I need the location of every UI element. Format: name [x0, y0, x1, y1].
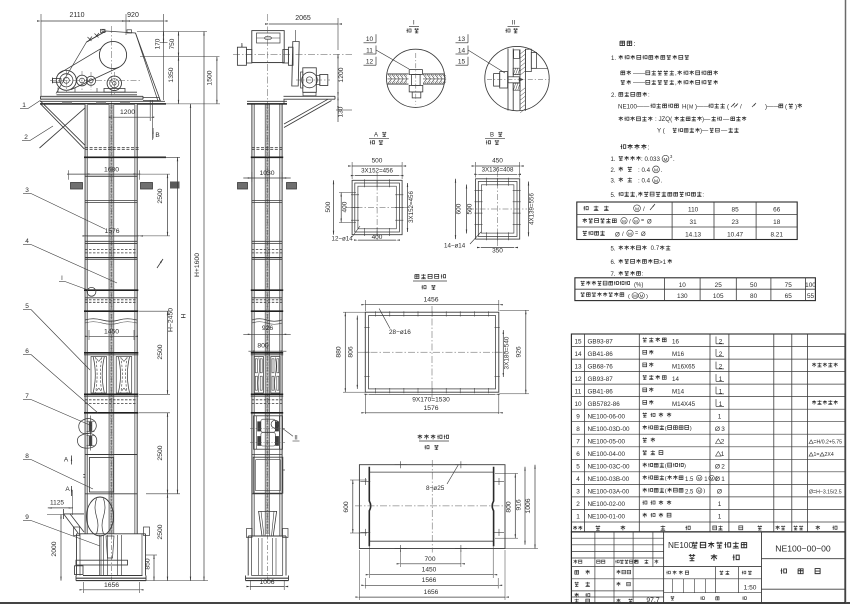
svg-text:)—: )— [702, 116, 711, 123]
svg-text:15: 15 [574, 338, 582, 345]
svg-text:M: M [697, 476, 701, 481]
svg-text:450: 450 [492, 158, 503, 165]
svg-text:)——: )—— [765, 104, 780, 111]
svg-text:=: = [641, 218, 644, 224]
svg-text:100: 100 [805, 282, 816, 289]
svg-text:400: 400 [341, 201, 348, 212]
svg-text:)—: )— [700, 128, 709, 135]
svg-text:M: M [622, 219, 626, 224]
svg-text:M: M [710, 476, 714, 481]
svg-text:2X4: 2X4 [825, 452, 834, 458]
svg-text:1.: 1. [611, 56, 616, 62]
svg-text:H: H [180, 313, 187, 318]
svg-text:M: M [664, 157, 668, 163]
svg-text:3X136=408: 3X136=408 [482, 166, 514, 173]
svg-text:2500: 2500 [157, 344, 164, 359]
svg-text:5.: 5. [611, 193, 616, 199]
svg-text:H−2450: H−2450 [168, 308, 175, 332]
svg-text:1:50: 1:50 [744, 585, 757, 592]
svg-text:: 0.4: : 0.4 [638, 178, 651, 185]
svg-text::: : [648, 144, 650, 151]
svg-text:14.13: 14.13 [685, 232, 701, 239]
svg-text:11: 11 [575, 388, 582, 395]
svg-text:3.: 3. [611, 179, 616, 185]
svg-text:M14: M14 [672, 388, 685, 395]
svg-text:): ) [703, 488, 705, 494]
svg-text:NE100-03B-00: NE100-03B-00 [588, 476, 630, 483]
svg-text:500: 500 [372, 158, 383, 165]
svg-text:A: A [64, 457, 69, 464]
svg-text:1: 1 [718, 514, 722, 521]
svg-text:1: 1 [719, 388, 723, 395]
svg-text:1.5: 1.5 [685, 477, 694, 483]
svg-text:3: 3 [721, 426, 725, 433]
svg-text:(: ( [665, 426, 667, 432]
svg-text:9: 9 [25, 514, 29, 521]
svg-text:130: 130 [677, 293, 688, 300]
svg-text:M: M [654, 178, 658, 184]
svg-text:1: 1 [718, 414, 722, 421]
svg-text:: JZQ(: : JZQ( [655, 116, 673, 123]
svg-text:12: 12 [574, 376, 582, 383]
svg-text:Ø: Ø [715, 476, 720, 483]
svg-text:1450: 1450 [104, 328, 119, 335]
svg-text:1.: 1. [611, 157, 616, 163]
svg-text:): ) [690, 426, 692, 432]
svg-text:110: 110 [688, 207, 699, 214]
svg-text:2500: 2500 [157, 524, 164, 539]
svg-text:13: 13 [458, 36, 466, 43]
svg-text:80: 80 [750, 293, 758, 300]
svg-text:2: 2 [719, 351, 723, 358]
svg-text:5: 5 [576, 464, 580, 471]
svg-text:=H/0.2+5.75: =H/0.2+5.75 [814, 440, 843, 446]
svg-text:3: 3 [576, 489, 580, 496]
svg-text:7: 7 [25, 393, 29, 400]
svg-text:2: 2 [24, 134, 28, 141]
svg-text:1500: 1500 [207, 70, 214, 85]
svg-text:M16: M16 [672, 351, 685, 358]
svg-text:1656: 1656 [424, 589, 439, 596]
svg-text:(: ( [665, 463, 667, 469]
svg-text:8.21: 8.21 [770, 232, 783, 239]
svg-text:Ø: Ø [717, 489, 722, 496]
svg-text:14−ø14: 14−ø14 [444, 243, 466, 250]
svg-text:1: 1 [22, 102, 26, 109]
svg-text:H+1600: H+1600 [194, 253, 201, 277]
svg-text:: 0.4: : 0.4 [638, 167, 651, 174]
svg-text:920: 920 [127, 12, 139, 19]
svg-text:31: 31 [690, 219, 698, 226]
svg-text:NE100-05-00: NE100-05-00 [588, 439, 626, 446]
svg-text:2: 2 [721, 439, 725, 446]
svg-text:M: M [640, 294, 644, 299]
svg-text:1=: 1= [814, 452, 820, 458]
svg-text:75: 75 [785, 282, 793, 289]
svg-text:600: 600 [343, 501, 350, 513]
svg-text:——: —— [633, 81, 645, 87]
svg-text:GB41-86: GB41-86 [588, 388, 614, 395]
svg-text:NE100-03C-00: NE100-03C-00 [588, 464, 631, 471]
svg-text:8−ø25: 8−ø25 [426, 485, 445, 492]
svg-text:12: 12 [366, 59, 374, 66]
svg-text:2500: 2500 [157, 188, 164, 203]
svg-text:7.: 7. [611, 272, 616, 278]
svg-text:M14X45: M14X45 [672, 401, 696, 408]
svg-text:Ø: Ø [715, 426, 720, 433]
svg-text:23: 23 [732, 219, 740, 226]
svg-text:50: 50 [750, 282, 758, 289]
svg-text:II: II [512, 20, 516, 27]
svg-text:916: 916 [515, 499, 522, 511]
svg-text:6: 6 [25, 348, 29, 355]
svg-text:Ø: Ø [647, 220, 652, 226]
svg-text:1125: 1125 [50, 500, 64, 507]
svg-text:(: ( [628, 294, 630, 300]
svg-text:1576: 1576 [423, 405, 438, 412]
svg-text:—: — [723, 116, 730, 123]
svg-text:M16X65: M16X65 [672, 363, 696, 370]
svg-text:/: / [740, 104, 742, 111]
svg-text:NE100-01-00: NE100-01-00 [588, 514, 626, 521]
svg-text:B: B [490, 133, 494, 139]
svg-text:1576: 1576 [104, 228, 119, 235]
svg-text:1200: 1200 [338, 67, 345, 82]
svg-text:9X170=1530: 9X170=1530 [412, 396, 450, 403]
svg-text:1: 1 [718, 501, 722, 508]
svg-text:6: 6 [576, 451, 580, 458]
svg-text:55: 55 [807, 293, 815, 300]
svg-text:/: / [643, 206, 645, 213]
svg-text:M: M [654, 168, 658, 174]
svg-text:): ) [646, 294, 648, 300]
svg-text:18: 18 [773, 219, 781, 226]
svg-text:9: 9 [576, 414, 580, 421]
svg-text:II: II [294, 436, 298, 442]
svg-text:750: 750 [169, 38, 176, 49]
svg-text:): ) [795, 104, 797, 111]
svg-text:600: 600 [455, 203, 462, 214]
svg-text:2: 2 [719, 338, 723, 345]
svg-text:M: M [634, 219, 638, 224]
svg-text:500: 500 [325, 201, 332, 212]
svg-text:11: 11 [366, 47, 373, 54]
svg-text:2500: 2500 [157, 445, 164, 460]
svg-text:850: 850 [144, 558, 151, 570]
svg-text:2065: 2065 [295, 15, 311, 22]
svg-text:926: 926 [262, 325, 274, 332]
svg-text:GB5782-86: GB5782-86 [588, 401, 621, 408]
svg-text:2: 2 [721, 464, 725, 471]
svg-text:GB93-87: GB93-87 [588, 376, 614, 383]
svg-text:400: 400 [372, 234, 383, 241]
svg-text:Ø: Ø [641, 232, 646, 238]
svg-text:1: 1 [719, 376, 723, 383]
svg-text:1200: 1200 [120, 109, 135, 116]
svg-text:1450: 1450 [422, 567, 437, 574]
svg-text:M: M [628, 232, 632, 237]
svg-text:NE100——: NE100—— [618, 104, 650, 111]
svg-text:A: A [65, 486, 70, 493]
svg-text:Y (: Y ( [657, 128, 666, 135]
svg-text:2000: 2000 [51, 541, 58, 556]
svg-text:4: 4 [25, 238, 29, 245]
svg-text:4X139=556: 4X139=556 [529, 193, 536, 225]
svg-text:1: 1 [721, 476, 725, 483]
svg-text:1030: 1030 [259, 170, 274, 177]
svg-text:14: 14 [574, 351, 582, 358]
svg-text:1006: 1006 [525, 498, 532, 513]
svg-text:14: 14 [672, 376, 679, 383]
svg-text:1456: 1456 [423, 297, 438, 304]
svg-text:800: 800 [506, 501, 513, 513]
svg-text:25: 25 [715, 282, 723, 289]
svg-text:NE100-04-00: NE100-04-00 [588, 451, 626, 458]
svg-text:M: M [697, 489, 701, 494]
svg-text:GB93-87: GB93-87 [588, 338, 614, 345]
svg-text:2.: 2. [611, 93, 616, 99]
svg-text:1566: 1566 [422, 577, 437, 584]
svg-text:2: 2 [719, 363, 723, 370]
svg-text:5: 5 [25, 303, 29, 310]
svg-text:2110: 2110 [69, 12, 84, 19]
svg-text:880: 880 [335, 346, 342, 358]
svg-text:2.5: 2.5 [685, 490, 694, 496]
svg-text:8: 8 [25, 453, 29, 460]
svg-text:NE100-03D-00: NE100-03D-00 [588, 426, 631, 433]
svg-text:(%): (%) [634, 283, 643, 289]
svg-text:)——: )—— [695, 104, 710, 111]
svg-text:3X152=456: 3X152=456 [361, 167, 393, 174]
svg-text:NE100-02-00: NE100-02-00 [588, 501, 626, 508]
svg-text:12−ø14: 12−ø14 [332, 236, 354, 243]
svg-text:105: 105 [713, 293, 724, 300]
svg-text:8: 8 [576, 426, 580, 433]
svg-text:6.: 6. [611, 260, 616, 266]
svg-text::: : [633, 41, 635, 48]
svg-text:Ø: Ø [715, 464, 720, 471]
svg-text:700: 700 [424, 556, 435, 563]
svg-text:170: 170 [155, 38, 162, 49]
svg-text:350: 350 [492, 248, 503, 255]
svg-text:97.7: 97.7 [646, 597, 659, 604]
svg-text:15: 15 [458, 59, 466, 66]
svg-text:(: ( [665, 488, 667, 494]
svg-text:NE100−00−00: NE100−00−00 [775, 544, 831, 554]
svg-text:130: 130 [338, 106, 345, 117]
svg-text:65: 65 [785, 293, 793, 300]
svg-text:): ) [684, 463, 686, 469]
svg-text:Ø=H−3.15/2.5: Ø=H−3.15/2.5 [809, 490, 842, 496]
svg-text:M: M [633, 294, 637, 299]
svg-text:7: 7 [576, 439, 580, 446]
svg-text:=: = [635, 231, 638, 237]
svg-text:NE100: NE100 [668, 541, 693, 550]
svg-text:3X180=540: 3X180=540 [504, 336, 511, 369]
svg-text:1680: 1680 [104, 166, 119, 173]
svg-text:10: 10 [679, 282, 687, 289]
svg-text:10.47: 10.47 [727, 232, 743, 239]
svg-text:10: 10 [574, 401, 582, 408]
svg-text:1656: 1656 [104, 582, 119, 589]
svg-text:A: A [374, 133, 378, 139]
svg-text:GB68-76: GB68-76 [588, 363, 614, 370]
svg-text:>1: >1 [659, 259, 667, 266]
svg-text:16: 16 [672, 338, 679, 345]
svg-text:800: 800 [257, 343, 269, 350]
svg-text:NE100-06-00: NE100-06-00 [588, 414, 626, 421]
svg-text:I: I [413, 20, 415, 27]
svg-text:1: 1 [576, 514, 580, 521]
svg-text:Ø: Ø [615, 231, 620, 238]
svg-text:: 0.033: : 0.033 [641, 156, 660, 163]
svg-text:1350: 1350 [168, 67, 175, 82]
svg-text:806: 806 [348, 346, 355, 358]
svg-text:M: M [689, 105, 693, 111]
svg-text:66: 66 [773, 207, 781, 214]
svg-text:GB41-86: GB41-86 [588, 351, 614, 358]
svg-text:14: 14 [458, 47, 466, 54]
svg-text:13: 13 [574, 363, 582, 370]
svg-text:4: 4 [576, 476, 580, 483]
svg-text:2: 2 [576, 501, 580, 508]
svg-text:926: 926 [516, 346, 523, 358]
svg-text:85: 85 [732, 207, 740, 214]
svg-text:1: 1 [721, 451, 725, 458]
svg-text:NE100-03A-00: NE100-03A-00 [588, 489, 630, 496]
svg-text:M: M [635, 207, 639, 212]
svg-text:1006: 1006 [259, 579, 274, 586]
svg-text:500: 500 [467, 203, 474, 214]
svg-text:5.: 5. [611, 247, 616, 253]
svg-text:——: —— [633, 71, 645, 77]
svg-text:3X152=456: 3X152=456 [408, 191, 415, 223]
svg-text:2.: 2. [611, 168, 616, 174]
svg-text:B: B [155, 132, 159, 139]
svg-text:1: 1 [719, 401, 723, 408]
svg-text:28−ø16: 28−ø16 [389, 329, 411, 336]
svg-text:10: 10 [366, 36, 374, 43]
svg-text:—: — [721, 128, 728, 135]
svg-text:(: ( [665, 476, 667, 482]
svg-text:3: 3 [25, 187, 29, 194]
